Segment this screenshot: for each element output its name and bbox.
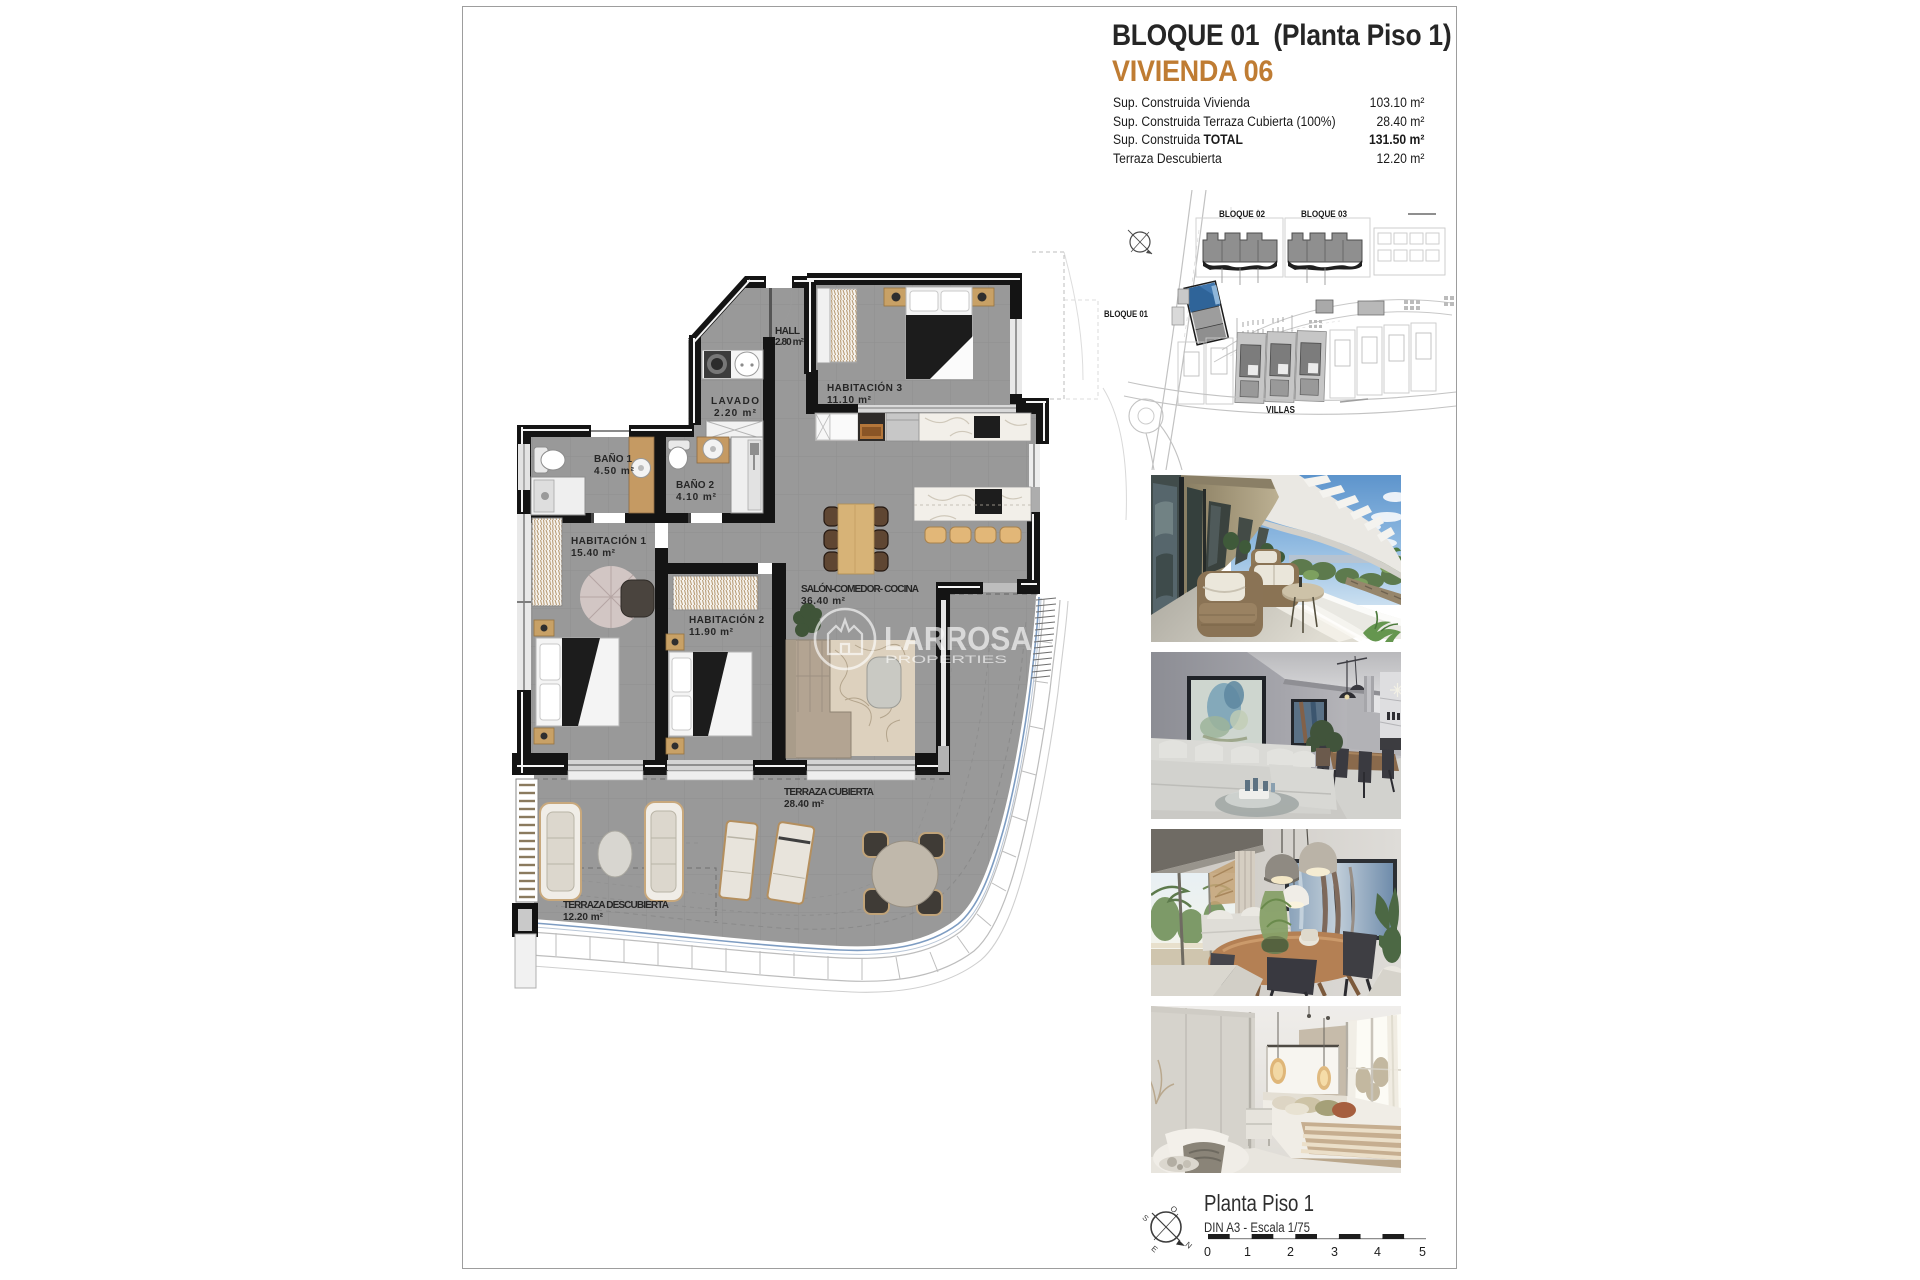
svg-text:VILLAS: VILLAS	[1266, 404, 1295, 416]
svg-text:HABITACIÓN 2: HABITACIÓN 2	[689, 613, 764, 626]
svg-text:12.20 m²: 12.20 m²	[563, 912, 604, 923]
svg-text:11.10 m²: 11.10 m²	[827, 395, 872, 406]
svg-text:BLOQUE 02: BLOQUE 02	[1219, 209, 1265, 219]
svg-text:Planta Piso 1: Planta Piso 1	[1204, 1190, 1314, 1216]
svg-text:S: S	[1140, 1213, 1150, 1223]
svg-text:HABITACIÓN 3: HABITACIÓN 3	[827, 381, 902, 394]
svg-text:36.40 m²: 36.40 m²	[801, 596, 846, 607]
svg-text:11.90 m²: 11.90 m²	[689, 627, 734, 638]
svg-text:2: 2	[1287, 1245, 1294, 1259]
svg-text:0: 0	[1204, 1245, 1211, 1259]
svg-text:15.40 m²: 15.40 m²	[571, 548, 616, 559]
svg-text:28.40 m²: 28.40 m²	[784, 799, 825, 810]
svg-text:3: 3	[1331, 1245, 1338, 1259]
svg-text:4.10 m²: 4.10 m²	[676, 492, 717, 503]
svg-text:BLOQUE 03: BLOQUE 03	[1301, 209, 1347, 219]
svg-text:5: 5	[1419, 1245, 1426, 1259]
svg-text:BLOQUE 01: BLOQUE 01	[1104, 309, 1148, 319]
svg-text:DIN A3 - Escala 1/75: DIN A3 - Escala 1/75	[1204, 1220, 1310, 1235]
svg-text:TERRAZA CUBIERTA: TERRAZA CUBIERTA	[784, 787, 874, 798]
svg-text:TERRAZA DESCUBIERTA: TERRAZA DESCUBIERTA	[563, 900, 669, 911]
svg-text:E: E	[1149, 1244, 1159, 1254]
svg-text:PROPERTIES: PROPERTIES	[885, 654, 1007, 666]
svg-text:4.50 m²: 4.50 m²	[594, 466, 635, 477]
svg-text:2.80 m²: 2.80 m²	[775, 337, 805, 348]
svg-text:2.20 m²: 2.20 m²	[714, 408, 757, 419]
svg-text:BAÑO 1: BAÑO 1	[594, 452, 632, 465]
svg-text:SALÓN-COMEDOR- COCINA: SALÓN-COMEDOR- COCINA	[801, 582, 919, 595]
svg-text:HABITACIÓN 1: HABITACIÓN 1	[571, 534, 646, 547]
svg-text:1: 1	[1244, 1245, 1251, 1259]
svg-text:LARROSA: LARROSA	[884, 620, 1032, 657]
svg-text:BAÑO 2: BAÑO 2	[676, 478, 714, 491]
svg-text:LAVADO: LAVADO	[711, 396, 759, 407]
svg-text:4: 4	[1374, 1245, 1381, 1259]
svg-text:N: N	[1183, 1240, 1193, 1251]
svg-text:HALL: HALL	[775, 326, 800, 337]
